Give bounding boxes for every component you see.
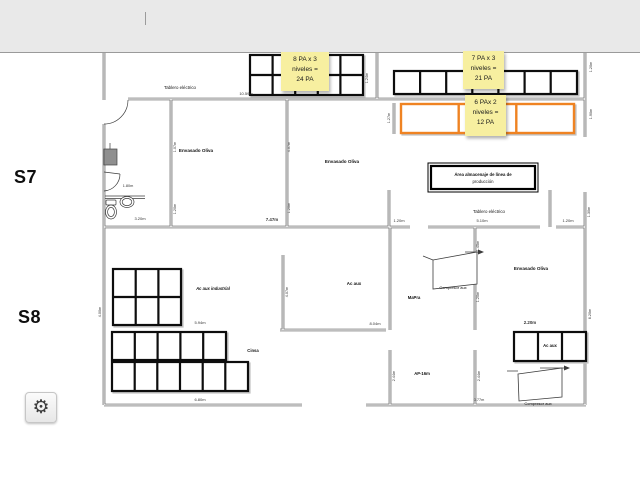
label-compresor-1: Compresor aux	[439, 285, 466, 290]
label-area-line2: producción	[472, 179, 494, 184]
note-line: 7 PA x 3	[463, 54, 504, 64]
label-envasado-3: Envasado Oliva	[514, 266, 549, 271]
label-ac-aux-room: Ac aux	[347, 281, 362, 286]
rack-row-5[interactable]	[112, 332, 228, 362]
label-cinsa: Cinsa	[247, 348, 259, 353]
dim-r620: 6.20m	[588, 309, 592, 320]
dim-r407a: 4.07m	[287, 142, 291, 153]
rack-industrial[interactable]	[113, 269, 183, 327]
dim-r120c: 1.20m	[589, 62, 593, 73]
dim-120a: 1.20m	[393, 218, 405, 223]
section-label-s7: S7	[14, 167, 37, 188]
sticky-note-21pa[interactable]: 7 PA x 3 niveles = 21 PA	[463, 51, 504, 89]
dim-680: 6.80m	[194, 397, 206, 402]
settings-button[interactable]: ⚙	[25, 392, 57, 423]
dim-1059: 10.59m	[239, 91, 253, 96]
label-ac-aux-rack: Ac aux	[543, 343, 557, 348]
floor-plan-app: Tablero eléctrico 10.59m Envasado Oliva …	[0, 0, 640, 480]
dim-r407b: 4.07m	[285, 287, 289, 298]
dim-510: 5.10m	[476, 218, 488, 223]
note-line: 12 PA	[465, 118, 506, 128]
note-line: 8 PA x 3	[281, 55, 329, 65]
label-tablero-top: Tablero eléctrico	[164, 85, 197, 90]
label-ap16: AP-16m	[414, 371, 430, 376]
note-line: 21 PA	[463, 74, 504, 84]
dim-220: 2.20m	[524, 320, 537, 325]
arrow-right-icon	[564, 366, 570, 371]
dim-r400: 4.00m	[98, 307, 102, 318]
counter	[104, 149, 117, 165]
dim-r120b: 1.20m	[287, 203, 291, 214]
note-line: niveles =	[281, 65, 329, 75]
label-envasado-2: Envasado Oliva	[325, 159, 360, 164]
dim-r127: 1.27m	[387, 113, 391, 124]
ruler-tick	[145, 12, 146, 25]
dim-r244b: 2.44m	[477, 371, 481, 382]
gear-icon: ⚙	[32, 398, 49, 417]
dim-804: 8.04m	[369, 321, 381, 326]
dim-r145: 1.45m	[476, 241, 480, 252]
dim-r107: 1.07m	[173, 142, 177, 153]
label-tablero-mid: Tablero eléctrico	[473, 209, 506, 214]
section-label-s8: S8	[18, 307, 41, 328]
label-mapra: MaPra	[408, 295, 421, 300]
note-line: niveles =	[465, 108, 506, 118]
dim-r130: 1.30m	[587, 207, 591, 218]
label-envasado-1: Envasado Oliva	[179, 148, 214, 153]
dim-077: 0.77m	[474, 398, 485, 402]
note-line: 24 PA	[281, 75, 329, 85]
dim-r120d: 1.20m	[476, 292, 480, 303]
rack-row-6[interactable]	[112, 362, 250, 393]
dim-747: 7.47m	[266, 217, 279, 222]
label-ac-aux-industrial: Ac aux industrial	[195, 286, 231, 291]
dim-r124: 1.24m	[365, 73, 369, 84]
dim-r190: 1.90m	[589, 109, 593, 120]
label-compresor-2: Compresor aux	[524, 401, 551, 406]
toilet-tank	[106, 200, 116, 205]
top-bar	[0, 0, 640, 53]
dim-r244a: 2.44m	[392, 371, 396, 382]
note-line: 6 PAx 2	[465, 98, 506, 108]
dim-594: 5.94m	[194, 320, 206, 325]
storage-area-box[interactable]	[428, 163, 538, 192]
dim-180: 1.80m	[123, 184, 134, 188]
label-area-line1: Área almacenaje de línea de	[454, 172, 512, 177]
note-line: niveles =	[463, 64, 504, 74]
compressor-2[interactable]	[507, 366, 570, 402]
dim-120b: 1.20m	[562, 218, 574, 223]
dim-r120a: 1.20m	[173, 204, 177, 215]
dim-320: 3.20m	[134, 216, 146, 221]
sticky-note-24pa[interactable]: 8 PA x 3 niveles = 24 PA	[281, 52, 329, 91]
sticky-note-12pa[interactable]: 6 PAx 2 niveles = 12 PA	[465, 95, 506, 136]
compressor-1[interactable]	[423, 250, 484, 290]
